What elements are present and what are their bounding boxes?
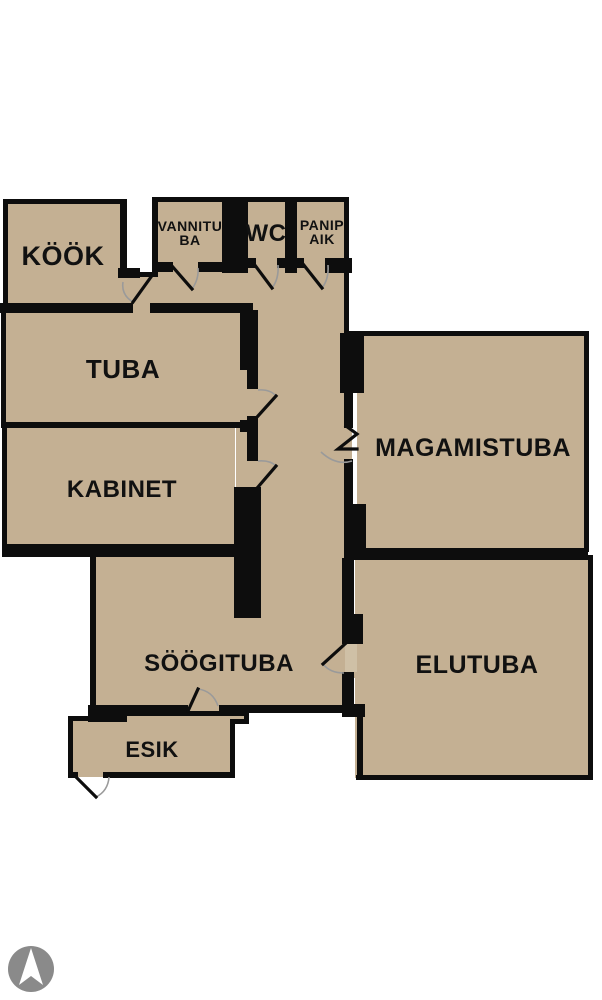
- compass-icon: [8, 946, 54, 992]
- exterior-notch: [124, 195, 156, 272]
- room-label-soogituba: SÖÖGITUBA: [144, 650, 294, 677]
- room-label-vannituba-line2: BA: [179, 232, 200, 248]
- room-label-kabinet: KABINET: [67, 476, 177, 503]
- room-label-magamistuba: MAGAMISTUBA: [375, 434, 571, 462]
- room-label-esik: ESIK: [125, 737, 178, 762]
- room-label-elutuba: ELUTUBA: [416, 651, 539, 679]
- room-label-wc: WC: [246, 220, 287, 247]
- door-esik-entrance: [75, 776, 109, 797]
- room-label-panipaik-line2: AIK: [309, 231, 335, 247]
- room-label-tuba: TUBA: [86, 354, 160, 384]
- floor-plan: KÖÖK VANNITU BA WC PANIP AIK TUBA KABINE…: [0, 0, 602, 1000]
- room-label-kook: KÖÖK: [22, 241, 105, 271]
